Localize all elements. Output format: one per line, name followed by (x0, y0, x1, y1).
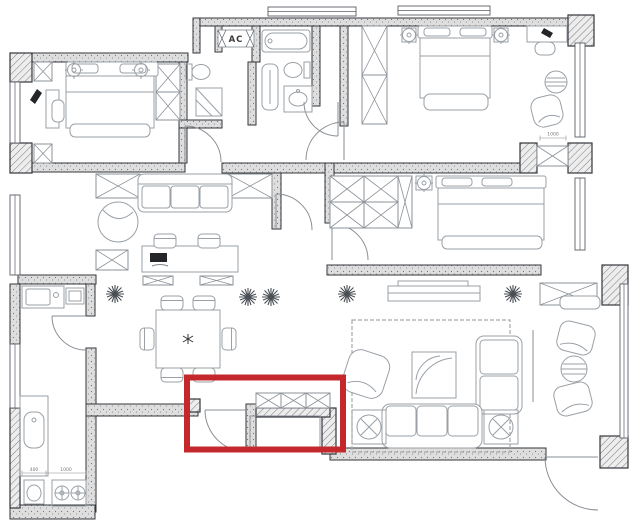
bathroom-left (186, 64, 222, 116)
chair-icon (140, 328, 154, 350)
window (10, 344, 20, 408)
appliance-icon (66, 288, 84, 304)
highlighted-cabinet (256, 393, 281, 408)
swivel-armchair-icon (98, 202, 138, 242)
window (10, 195, 20, 275)
balcony-bench (560, 296, 600, 309)
balcony-glazing (620, 284, 628, 438)
armchair-icon (339, 347, 393, 402)
cabinet (96, 250, 128, 270)
desk-and-chair (46, 90, 64, 128)
plant-icon (239, 288, 257, 306)
cabinet (228, 174, 272, 198)
passage-corner (250, 416, 320, 450)
balcony (552, 296, 600, 418)
highlighted-cabinet (281, 393, 306, 408)
balcony-chair-icon (552, 380, 594, 418)
bathroom-right (262, 30, 312, 112)
coffee-table (412, 352, 456, 398)
toilet-icon (186, 64, 210, 80)
closet (34, 62, 52, 81)
armchair-icon (529, 93, 565, 129)
kitchen: 400 1000 (20, 286, 86, 506)
double-bed (418, 26, 492, 110)
bedside-lamp-icon (400, 26, 418, 44)
wardrobe (362, 75, 387, 124)
sofa (138, 174, 232, 212)
door-passage-highlighted (205, 410, 247, 452)
chair-icon (154, 234, 176, 248)
door-hall-bathroom (185, 126, 221, 162)
plant-icon (338, 285, 356, 303)
corner-shower-icon (196, 88, 222, 116)
decor-pen-icon (541, 28, 553, 38)
wardrobe (364, 176, 398, 202)
side-table-icon (484, 410, 518, 444)
living-room (250, 281, 533, 452)
counter (20, 396, 48, 476)
wardrobe (364, 202, 398, 228)
decor-pen-icon (30, 89, 42, 104)
window (268, 7, 356, 16)
wardrobe (156, 64, 180, 92)
nightstand (416, 176, 432, 190)
tv-console (388, 281, 480, 301)
dining-room (106, 285, 280, 382)
loveseat (476, 336, 522, 414)
door-bathroom-right (304, 102, 338, 136)
wardrobe (330, 176, 364, 202)
bedroom-right (415, 174, 546, 249)
chair-icon (161, 368, 183, 382)
chair-icon (222, 328, 236, 350)
plant-icon (106, 285, 124, 303)
wardrobe (156, 92, 180, 120)
dim-label: 1000 (547, 132, 559, 138)
plant-icon (262, 288, 280, 306)
ac-closet: AC (218, 30, 254, 47)
floorplan-svg: AC (0, 0, 640, 529)
balcony-chair-icon (555, 319, 597, 357)
window (398, 6, 490, 15)
dim-label: 1000 (60, 467, 72, 473)
dim-label: 400 (30, 467, 39, 473)
door-kitchen (52, 316, 86, 350)
dimension: 1000 (540, 132, 566, 141)
laptop-icon (150, 253, 167, 262)
plant-icon (504, 285, 522, 303)
entry-door (545, 457, 598, 510)
sideboard (143, 276, 173, 285)
door-bedroom-right (332, 224, 368, 260)
highlighted-cabinet (306, 393, 330, 408)
wardrobe (398, 176, 412, 228)
ac-label: AC (229, 35, 244, 45)
cabinet (96, 174, 140, 198)
vanity-sink-icon (284, 86, 312, 112)
window (575, 43, 585, 137)
three-seat-sofa (382, 404, 482, 448)
shower-column-icon (262, 64, 278, 110)
toilet-icon (284, 62, 310, 78)
round-table-icon (545, 71, 567, 93)
master-bedroom: 1000 (400, 26, 567, 141)
floorplan-image: AC (0, 0, 640, 529)
bathtub-icon (262, 30, 310, 52)
chair-icon (198, 234, 220, 248)
chair-icon (161, 296, 183, 310)
sideboard (200, 276, 233, 285)
side-table-icon (352, 410, 386, 444)
utility-basin-icon (24, 480, 44, 504)
closet (537, 146, 568, 166)
dimension: 400 1000 (22, 467, 86, 476)
wardrobe (330, 202, 364, 228)
kitchen-sink-icon (22, 286, 64, 308)
wardrobe (362, 26, 387, 75)
bedside-lamp-icon (415, 174, 433, 192)
balcony-table-icon (561, 356, 587, 382)
chair-icon (193, 296, 215, 310)
gas-stove-icon (52, 480, 86, 506)
double-bed (436, 176, 546, 249)
window (10, 82, 20, 143)
bedside-lamp-icon (492, 26, 510, 44)
closet (34, 144, 52, 163)
window (575, 178, 585, 250)
